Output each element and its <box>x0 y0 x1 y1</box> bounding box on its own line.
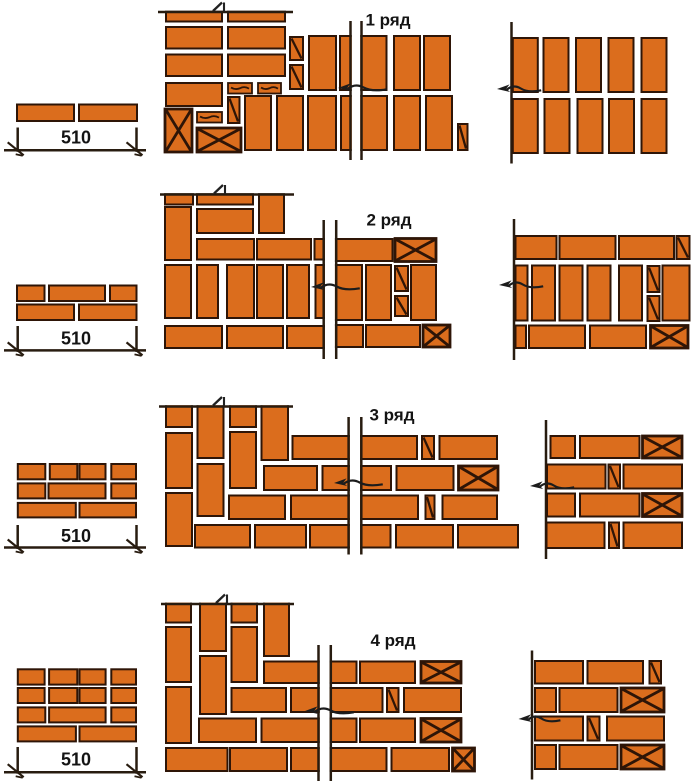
svg-text:3 ряд: 3 ряд <box>369 406 414 425</box>
svg-text:1 ряд: 1 ряд <box>365 11 410 30</box>
svg-text:2 ряд: 2 ряд <box>366 211 411 230</box>
svg-text:510: 510 <box>61 750 91 770</box>
svg-text:4 ряд: 4 ряд <box>370 631 415 650</box>
svg-text:510: 510 <box>61 329 91 349</box>
svg-text:510: 510 <box>61 526 91 546</box>
svg-text:510: 510 <box>61 128 91 148</box>
